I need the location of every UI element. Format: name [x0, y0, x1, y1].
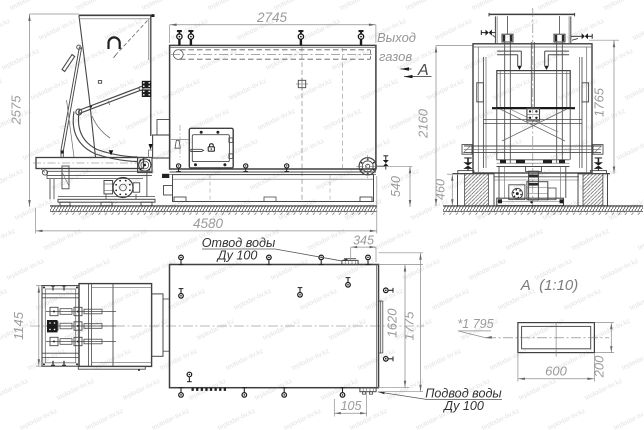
svg-text:1145: 1145 [11, 311, 26, 340]
svg-text:А (1:10): А (1:10) [520, 277, 579, 294]
svg-text:105: 105 [341, 399, 362, 413]
svg-text:200: 200 [592, 355, 607, 378]
svg-text:газов: газов [379, 49, 412, 64]
svg-text:600: 600 [545, 364, 567, 379]
svg-text:2745: 2745 [256, 10, 288, 25]
svg-text:345: 345 [353, 234, 374, 248]
svg-text:1620: 1620 [385, 308, 400, 338]
svg-text:Выход: Выход [377, 30, 416, 45]
svg-text:4580: 4580 [193, 216, 224, 231]
svg-text:540: 540 [389, 176, 403, 197]
svg-text:*1 795: *1 795 [457, 317, 493, 331]
svg-text:2160: 2160 [416, 108, 431, 139]
svg-text:Ду 100: Ду 100 [216, 249, 258, 263]
svg-text:А: А [417, 62, 429, 79]
svg-text:1765: 1765 [592, 87, 607, 117]
svg-text:1775: 1775 [402, 311, 417, 341]
svg-text:460: 460 [434, 179, 448, 200]
svg-text:Ду 100: Ду 100 [442, 399, 484, 413]
svg-text:2575: 2575 [9, 95, 24, 126]
